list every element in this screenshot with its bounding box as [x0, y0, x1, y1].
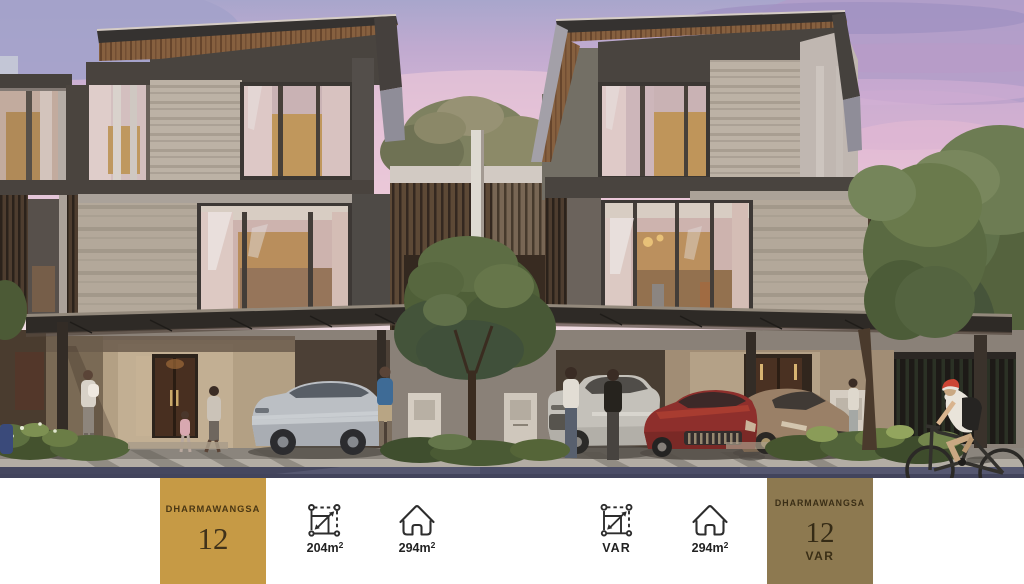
svg-text:DHARMAWANGSA: DHARMAWANGSA [166, 504, 261, 514]
svg-text:294m2: 294m2 [399, 540, 436, 555]
svg-text:12: 12 [198, 521, 229, 556]
svg-text:VAR: VAR [602, 541, 630, 555]
svg-text:294m2: 294m2 [692, 540, 729, 555]
svg-text:DHARMAWANGSA: DHARMAWANGSA [775, 498, 865, 508]
svg-text:204m2: 204m2 [307, 540, 344, 555]
svg-text:VAR: VAR [806, 549, 835, 563]
svg-text:12: 12 [806, 517, 835, 549]
